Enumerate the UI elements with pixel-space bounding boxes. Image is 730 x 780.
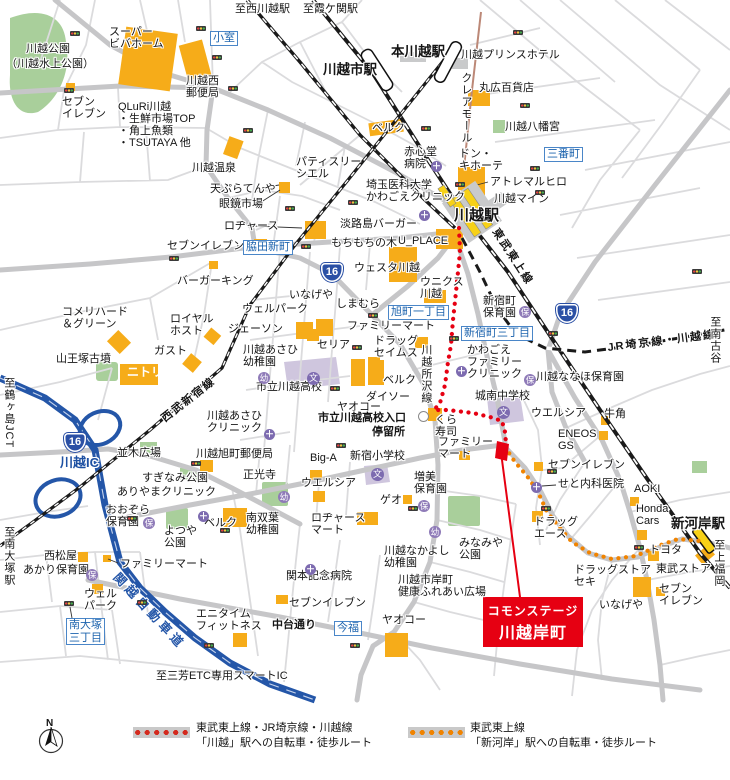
traffic-signal-icon: [449, 336, 459, 341]
traffic-signal-icon: [330, 386, 340, 391]
map-label: セブンイレブン: [548, 460, 625, 472]
map-label: ドラッグ エース: [534, 517, 578, 541]
traffic-signal-icon: [520, 103, 530, 108]
map-label: 埼玉医科大学 かわごえクリニック: [366, 180, 465, 204]
map-label: ジェーソン: [228, 324, 283, 336]
hospital-icon: ＋: [264, 429, 275, 440]
traffic-signal-icon: [548, 331, 558, 336]
map-label: いなげや: [289, 290, 333, 302]
map-label: 至南大塚駅: [2, 526, 14, 586]
site-name-line1: コモンステージ: [483, 602, 583, 619]
map-label: 天ぷらてんや: [210, 184, 276, 196]
map-label: ファミリーマート: [347, 321, 435, 333]
map-label: アトレマルヒロ: [490, 177, 567, 189]
map-label: ロヂャース: [224, 221, 278, 233]
map-label: 至南古谷: [708, 316, 720, 364]
map-label: 川越温泉: [192, 163, 236, 175]
map-label: 川越八幡宮: [505, 122, 560, 134]
map-label: 川越ななほ保育園: [536, 372, 624, 384]
map-label: 川越旭町郵便局: [196, 449, 273, 461]
traffic-signal-icon: [243, 128, 253, 133]
legend-text-kawagoe-route: 東武東上線・JR埼京線・川越線 「川越」駅への自転車・徒歩ルート: [196, 721, 372, 751]
map-label: ヤオコー: [382, 615, 426, 627]
map-label: 新宿小学校: [350, 451, 405, 463]
map-label: セブン イレブン: [62, 97, 106, 121]
bus-stop-icon: [418, 411, 429, 422]
legend-text-shingashi-route: 東武東上線 「新河岸」駅への自転車・徒歩ルート: [470, 721, 657, 751]
map-label: AOKI: [634, 484, 660, 496]
map-label: ドラッグ セイムス: [374, 336, 418, 360]
map-label: ウエルシア: [531, 408, 586, 420]
map-label: （川越水上公園）: [6, 59, 94, 71]
school-icon: 文: [371, 468, 384, 481]
traffic-signal-icon: [634, 545, 644, 550]
map-label: ドン・ キホーテ: [459, 149, 503, 173]
site-callout: コモンステージ 川越岸町: [483, 597, 583, 647]
map-label: セブンイレブン: [167, 241, 244, 253]
traffic-signal-icon: [513, 30, 523, 35]
map-label: ゲオ: [380, 495, 402, 507]
map-label: 川越マイン: [494, 194, 549, 206]
map-label: 増美 保育園: [414, 472, 447, 496]
map-label: 西松屋: [44, 551, 77, 563]
map-label: ウエルシア: [301, 478, 356, 490]
map-label: ウェルパーク: [242, 304, 308, 316]
map-label: 至鶴ヶ島JCT: [2, 377, 14, 448]
traffic-signal-icon: [212, 55, 222, 60]
hospital-icon: ＋: [456, 366, 467, 377]
map-label: コメリハード ＆グリーン: [62, 307, 128, 331]
map-label: 川越所沢線: [419, 344, 431, 404]
legend-swatch-shingashi-route: [408, 727, 465, 738]
map-label: いなげや: [599, 600, 643, 612]
map-label: ドラッグストア セキ: [574, 565, 651, 589]
hospital-icon: ＋: [431, 161, 442, 172]
site-marker: [495, 441, 509, 461]
intersection-label: 三番町: [544, 147, 583, 162]
intersection-label: 新宿町三丁目: [461, 326, 533, 341]
nursery-icon: 保: [519, 306, 531, 318]
school-icon: 文: [497, 406, 510, 419]
map-label: ENEOS GS: [558, 429, 597, 453]
traffic-signal-icon: [421, 126, 431, 131]
map-label: エニタイム フィットネス: [196, 609, 262, 633]
map-label: バーガーキング: [177, 276, 254, 288]
map-label: 新宿町 保育園: [483, 296, 516, 320]
map-label: 至三芳ETC専用スマートIC: [156, 671, 288, 683]
map-label: 新河岸駅: [671, 517, 725, 532]
nursery-icon: 保: [418, 500, 430, 512]
map-label: セブン イレブン: [659, 584, 703, 608]
intersection-label: 小室: [210, 31, 238, 46]
map-label: 川越市駅: [323, 63, 377, 78]
map-graphics: [0, 0, 730, 780]
map-label: ファミリー マート: [438, 437, 493, 461]
map-label: 川越あさひ 幼稚園: [243, 345, 298, 369]
traffic-signal-icon: [137, 600, 147, 605]
hospital-icon: ＋: [419, 210, 430, 221]
map-label: パティスリー シエル: [296, 157, 361, 181]
intersection-label: 旭町一丁目: [388, 305, 449, 320]
school-icon: 文: [307, 372, 320, 385]
traffic-signal-icon: [336, 443, 346, 448]
traffic-signal-icon: [127, 516, 137, 521]
map-label: 淡路島バーガー: [340, 219, 417, 231]
traffic-signal-icon: [204, 643, 214, 648]
map-label: 関本記念病院: [286, 571, 352, 583]
nursery-icon: 保: [524, 374, 536, 386]
nursery-icon: 幼: [429, 526, 441, 538]
map-label: U_PLACE: [398, 236, 448, 248]
map-label: 停留所: [372, 427, 405, 439]
map-label: スーパー ビバホーム: [109, 27, 164, 51]
map-label: あかり保育園: [23, 565, 89, 577]
map-label: セブンイレブン: [289, 598, 366, 610]
map-label: ベルク: [372, 123, 405, 135]
traffic-signal-icon: [455, 182, 465, 187]
compass-icon: [40, 727, 63, 753]
map-canvas: コモンステージ 川越岸町 N 東武東上線・JR埼京線・川越線 「川越」駅への自転…: [0, 0, 730, 780]
map-label: よつや 公園: [164, 526, 197, 550]
map-label: Honda Cars: [636, 504, 668, 528]
traffic-signal-icon: [535, 190, 545, 195]
intersection-label: 今福: [334, 621, 362, 636]
hospital-icon: ＋: [531, 482, 542, 493]
traffic-signal-icon: [350, 643, 360, 648]
hospital-icon: ＋: [305, 564, 316, 575]
traffic-signal-icon: [64, 88, 74, 93]
traffic-signal-icon: [220, 528, 230, 533]
map-label: QLuRi川越 ・生鮮市場TOP ・角上魚類 ・TSUTAYA 他: [118, 102, 195, 150]
map-label: かわごえ ファミリー クリニック: [467, 345, 522, 381]
map-label: せと内科医院: [558, 479, 624, 491]
map-label: 川越IC: [60, 456, 99, 470]
legend-swatch-kawagoe-route: [133, 727, 190, 738]
map-label: ロイヤル ホスト: [170, 314, 214, 338]
map-label: 山王塚古墳: [56, 354, 111, 366]
map-label: 眼鏡市場: [219, 199, 263, 211]
map-label: 川越あさひ クリニック: [207, 411, 262, 435]
map-label: ニトリ: [127, 366, 163, 379]
map-label: ありやまクリニック: [117, 487, 216, 499]
nursery-icon: 保: [143, 517, 155, 529]
map-label: 至霞ケ関駅: [303, 4, 358, 16]
map-label: Big-A: [310, 453, 337, 465]
traffic-signal-icon: [352, 345, 362, 350]
traffic-signal-icon: [301, 244, 311, 249]
map-label: 川越公園: [26, 44, 70, 56]
map-label: トヨタ: [649, 545, 682, 557]
map-label: 至西川越駅: [235, 4, 290, 16]
map-label: 至上福岡: [712, 539, 724, 587]
stations-layer: [359, 40, 716, 554]
nursery-icon: 保: [86, 569, 98, 581]
map-label: 牛角: [604, 409, 626, 421]
kanetsu-expressway: [0, 378, 315, 700]
map-label: クレアモール: [459, 72, 471, 144]
map-label: ウェル パーク: [84, 589, 117, 613]
site-name-line2: 川越岸町: [483, 619, 583, 643]
traffic-signal-icon: [547, 469, 557, 474]
traffic-signal-icon: [70, 31, 80, 36]
traffic-signal-icon: [285, 206, 295, 211]
traffic-signal-icon: [348, 200, 358, 205]
map-label: すぎなみ公園: [142, 473, 208, 485]
map-label: 丸広百貨店: [479, 83, 534, 95]
map-label: もちもちの木: [331, 238, 397, 250]
map-label: みなみや 公園: [459, 538, 503, 562]
map-label: 東武ストア: [656, 564, 711, 576]
map-label: 川越駅: [454, 208, 499, 224]
map-label: ガスト: [154, 346, 187, 358]
map-label: ベルク: [383, 375, 416, 387]
map-label: 中台通り: [272, 620, 316, 632]
traffic-signal-icon: [196, 26, 206, 31]
traffic-signal-icon: [228, 86, 238, 91]
map-label: 川越なかよし 幼稚園: [384, 546, 449, 570]
nursery-icon: 幼: [278, 491, 290, 503]
map-label: ロヂャース マート: [311, 513, 365, 537]
map-label: 本川越駅: [391, 45, 445, 60]
map-label: ファミリーマート: [120, 559, 208, 571]
compass-north-label: N: [46, 719, 53, 730]
traffic-signal-icon: [692, 269, 702, 274]
traffic-signal-icon: [530, 166, 540, 171]
traffic-signal-icon: [408, 506, 418, 511]
map-label: 川越市岸町 健康ふれあい広場: [398, 575, 486, 599]
traffic-signal-icon: [169, 256, 179, 261]
map-label: 市立川越高校入口: [318, 413, 406, 425]
map-label: セリア: [317, 340, 350, 352]
map-label: 城南中学校: [475, 391, 530, 403]
traffic-signal-icon: [541, 506, 551, 511]
traffic-signal-icon: [191, 461, 201, 466]
intersection-label: 脇田新町: [243, 240, 293, 255]
map-label: 川越西 郵便局: [186, 76, 219, 100]
map-label: 並木広場: [117, 448, 161, 460]
traffic-signal-icon: [368, 313, 378, 318]
traffic-signal-icon: [64, 601, 74, 606]
nursery-icon: 幼: [258, 372, 270, 384]
map-label: ウェスタ川越: [354, 263, 420, 275]
hospital-icon: ＋: [198, 511, 209, 522]
map-label: 南双葉 幼稚園: [246, 513, 279, 537]
map-label: ウニクス 川越: [420, 277, 464, 301]
intersection-label: 南大塚 三丁目: [66, 618, 105, 645]
map-label: しまむら: [336, 299, 380, 311]
map-label: 正光寺: [243, 470, 276, 482]
map-label: 川越プリンスホテル: [461, 50, 560, 62]
